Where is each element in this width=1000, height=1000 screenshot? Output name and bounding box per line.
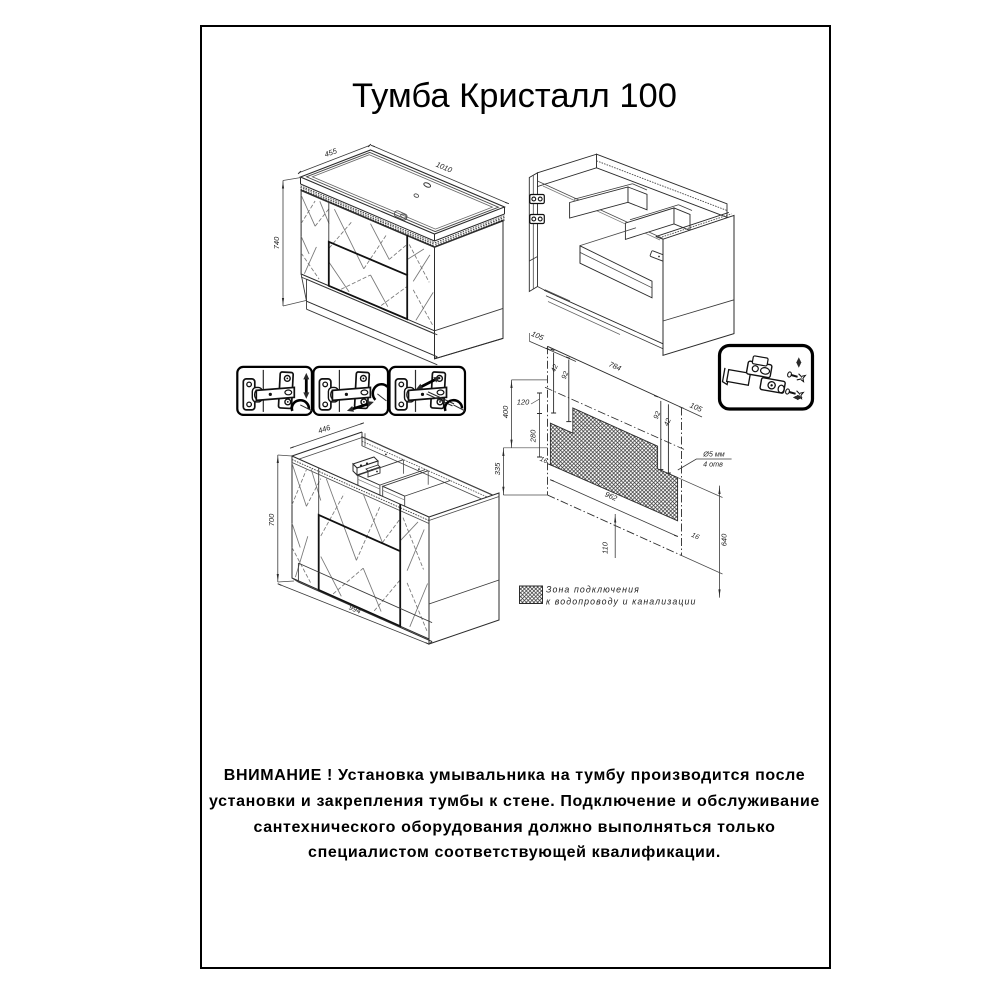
svg-text:455: 455 [323,146,339,159]
svg-text:105: 105 [530,329,546,343]
svg-text:700: 700 [267,513,276,526]
svg-text:к водопроводу и канализации: к водопроводу и канализации [546,597,696,607]
svg-text:4 отв: 4 отв [703,460,723,469]
svg-text:740: 740 [272,236,281,249]
svg-text:16: 16 [690,532,700,542]
svg-text:335: 335 [493,462,502,475]
svg-text:280: 280 [529,429,538,443]
svg-text:120: 120 [517,398,530,407]
svg-text:784: 784 [607,360,622,373]
svg-text:400: 400 [501,405,510,418]
svg-text:Зона подключения: Зона подключения [546,585,640,595]
svg-text:42: 42 [663,417,672,427]
svg-text:110: 110 [601,541,610,554]
svg-text:446: 446 [317,423,333,436]
svg-text:42: 42 [550,363,559,373]
svg-text:640: 640 [720,533,729,546]
svg-text:Ø5 мм: Ø5 мм [702,450,725,459]
svg-text:1010: 1010 [435,160,455,175]
